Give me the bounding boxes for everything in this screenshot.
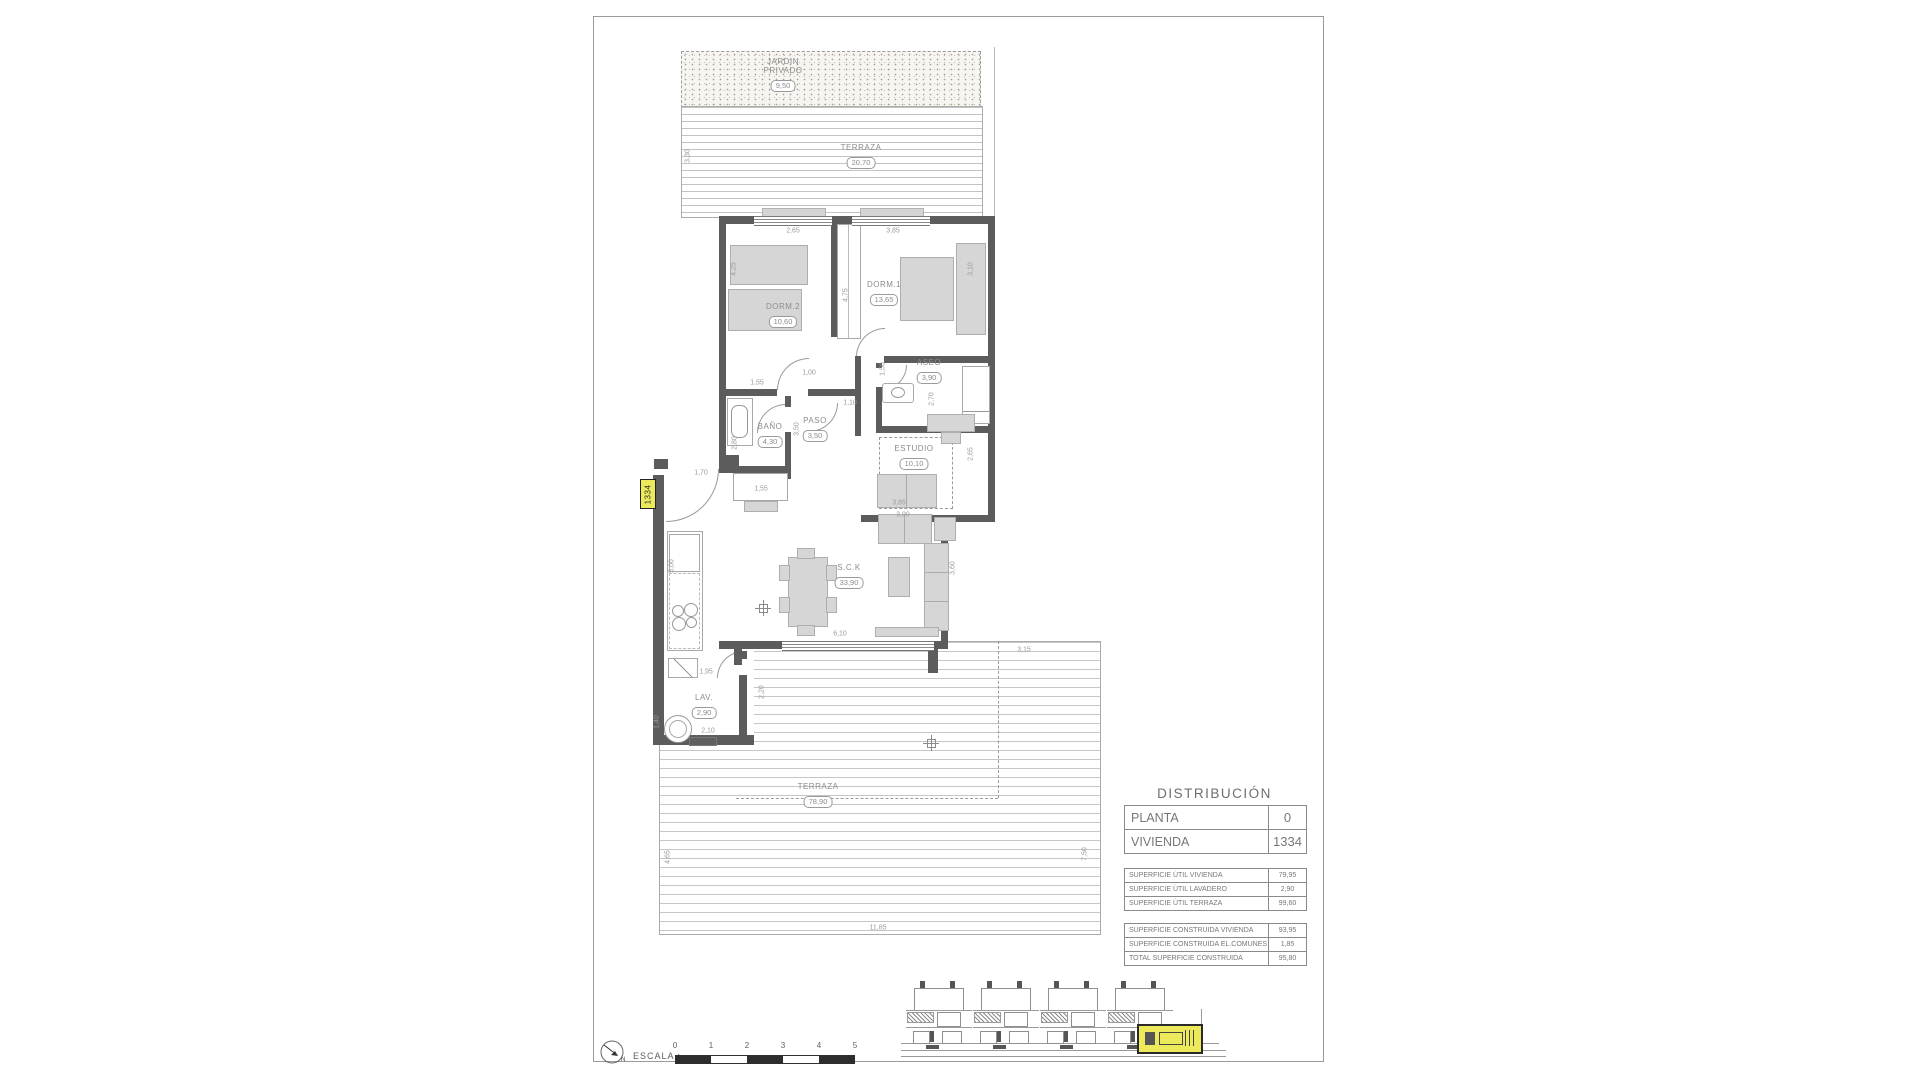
room-name: S.C.K xyxy=(835,563,864,572)
hob-burner xyxy=(684,603,698,617)
hob-burner xyxy=(672,617,686,631)
elevation-detail xyxy=(1048,988,1098,1011)
wall xyxy=(855,356,861,436)
window xyxy=(754,216,832,226)
elevation-detail xyxy=(1041,1012,1068,1023)
private-garden-area xyxy=(681,51,981,108)
wall xyxy=(653,475,664,741)
dimension-label: 5,00 xyxy=(669,559,676,573)
scale-tick: 1 xyxy=(709,1041,713,1050)
room-name: TERRAZA xyxy=(798,782,839,791)
room-label: TERRAZA78,90 xyxy=(798,782,839,809)
dimension-label: 1,40 xyxy=(654,715,661,729)
room-name: DORM.1 xyxy=(867,280,901,289)
useful-surface-table: SUPERFICIE ÚTIL VIVIENDA79,95SUPERFICIE … xyxy=(1124,868,1307,911)
dining-table xyxy=(788,557,828,627)
chair xyxy=(779,597,790,613)
washing-machine-drum xyxy=(669,720,687,738)
dimension-label: 3,15 xyxy=(1017,647,1031,654)
dimension-label: 3,10 xyxy=(968,262,975,276)
elevation-detail xyxy=(906,1010,972,1011)
room-area-value: 13,65 xyxy=(870,294,899,306)
elevation-detail xyxy=(1040,1027,1106,1028)
dimension-label: 3,85 xyxy=(886,228,900,235)
table-row-value: 2,90 xyxy=(1268,883,1306,896)
bed xyxy=(730,245,808,285)
wardrobe xyxy=(837,224,861,339)
scale-segment xyxy=(675,1055,711,1064)
table-row-value: 95,80 xyxy=(1268,952,1306,965)
table-row-value: 1,85 xyxy=(1268,938,1306,951)
wall xyxy=(739,675,747,741)
reference-cross xyxy=(923,735,939,751)
terrace-dashdot-line xyxy=(736,798,998,799)
elevation-detail xyxy=(1004,1012,1028,1027)
room-area-value: 9,50 xyxy=(771,80,796,92)
dimension-label: 3,85 xyxy=(892,500,906,507)
room-area-value: 4,30 xyxy=(758,436,783,448)
dimension-label: 2,65 xyxy=(968,447,975,461)
tv-bench xyxy=(875,627,939,637)
room-label: ASEO3,90 xyxy=(917,358,942,385)
armchair xyxy=(934,517,956,541)
bed xyxy=(900,257,954,321)
room-name: ESTUDIO xyxy=(894,444,933,453)
elevation-detail xyxy=(987,981,992,988)
wall xyxy=(719,389,777,396)
table-row: VIVIENDA1334 xyxy=(1125,830,1306,853)
dimension-label: 1,70 xyxy=(694,470,708,477)
sofa xyxy=(878,514,932,544)
dimension-label: 6,10 xyxy=(833,631,847,638)
room-area-value: 33,90 xyxy=(835,577,864,589)
wall xyxy=(739,651,747,659)
table-row-label: SUPERFICIE ÚTIL LAVADERO xyxy=(1125,883,1268,896)
dimension-label: 3,50 xyxy=(794,422,801,436)
elevation-detail xyxy=(920,981,925,988)
elevation-detail xyxy=(1084,981,1089,988)
room-label: S.C.K33,90 xyxy=(835,563,864,590)
table-row: SUPERFICIE ÚTIL TERRAZA99,60 xyxy=(1125,897,1306,910)
elevation-detail xyxy=(997,1031,1001,1042)
table-row: SUPERFICIE ÚTIL VIVIENDA79,95 xyxy=(1125,869,1306,883)
table-row-value: 93,95 xyxy=(1268,924,1306,937)
scale-label: ESCALA : xyxy=(633,1051,681,1061)
elevation-detail xyxy=(1107,1010,1173,1011)
table-row-label: SUPERFICIE ÚTIL VIVIENDA xyxy=(1125,869,1268,882)
scale-segment xyxy=(819,1055,855,1064)
table-row-value: 99,60 xyxy=(1268,897,1306,910)
sofa xyxy=(924,543,949,631)
washbasin-bowl xyxy=(891,387,905,398)
table-row-label: SUPERFICIE CONSTRUIDA VIVIENDA xyxy=(1125,924,1268,937)
dimension-label: 1,55 xyxy=(750,380,764,387)
table-row: SUPERFICIE CONSTRUIDA VIVIENDA93,95 xyxy=(1125,924,1306,938)
laundry-sink xyxy=(668,658,698,678)
elevation-detail xyxy=(1108,1012,1135,1023)
built-surface-table: SUPERFICIE CONSTRUIDA VIVIENDA93,95SUPER… xyxy=(1124,923,1307,966)
elevation-detail xyxy=(1017,981,1022,988)
scale-tick: 2 xyxy=(745,1041,749,1050)
room-area-value: 3,50 xyxy=(803,430,828,442)
rug xyxy=(744,501,778,512)
elevation-detail xyxy=(1076,1031,1096,1044)
window xyxy=(782,641,934,651)
elevation-detail xyxy=(1151,981,1156,988)
elevation-detail xyxy=(1114,1031,1131,1044)
dimension-label: 3,60 xyxy=(950,561,957,575)
distribution-title: DISTRIBUCIÓN xyxy=(1124,786,1305,801)
sofa xyxy=(877,474,937,508)
window xyxy=(852,216,930,226)
scale-segment xyxy=(711,1055,747,1064)
hob-burner xyxy=(672,605,684,617)
room-name: LAV. xyxy=(692,693,717,702)
elevation-detail xyxy=(1071,1012,1095,1027)
chair xyxy=(797,625,815,636)
plant-unit-table: PLANTA0VIVIENDA1334 xyxy=(1124,805,1307,854)
elevation-detail xyxy=(1131,1031,1135,1042)
table-row-label: SUPERFICIE CONSTRUIDA EL.COMUNES xyxy=(1125,938,1268,951)
highlighted-unit xyxy=(1137,1024,1203,1054)
room-label: ESTUDIO10,10 xyxy=(894,444,933,471)
bathtub-basin xyxy=(731,405,748,438)
room-area-value: 3,90 xyxy=(917,372,942,384)
elevation-detail xyxy=(973,1010,1039,1011)
coffee-table xyxy=(888,557,910,597)
elevation-detail xyxy=(1060,1045,1073,1049)
room-label: LAV.2,90 xyxy=(692,693,717,720)
elevation-detail xyxy=(950,981,955,988)
wall xyxy=(719,216,726,469)
elevation-detail xyxy=(1009,1031,1029,1044)
dimension-label: 3,30 xyxy=(685,149,692,163)
chair xyxy=(779,565,790,581)
wall xyxy=(785,396,791,407)
desk-chair xyxy=(941,432,961,444)
table-row-label: VIVIENDA xyxy=(1125,830,1268,853)
scale-segment xyxy=(783,1055,819,1064)
table-row-value: 79,95 xyxy=(1268,869,1306,882)
hob-burner xyxy=(686,617,697,628)
reference-cross xyxy=(755,600,771,616)
elevation-detail xyxy=(930,1031,934,1042)
elevation-detail xyxy=(1064,1031,1068,1042)
elevation-detail xyxy=(973,1027,1039,1028)
scale-tick: 4 xyxy=(817,1041,821,1050)
room-area-value: 10,10 xyxy=(900,458,929,470)
unit-number: 1334 xyxy=(644,484,653,504)
elevation-detail xyxy=(980,1031,997,1044)
wall xyxy=(654,459,668,469)
table-row-label: TOTAL SUPERFICIE CONSTRUIDA xyxy=(1125,952,1268,965)
room-label: TERRAZA20,70 xyxy=(841,143,882,170)
elevation-detail xyxy=(937,1012,961,1027)
wall xyxy=(808,389,861,396)
terrace-dashed-line xyxy=(998,641,999,798)
room-label: JARDIN PRIVADO9,50 xyxy=(764,57,803,93)
elevation-detail xyxy=(926,1045,939,1049)
table-row-label: SUPERFICIE ÚTIL TERRAZA xyxy=(1125,897,1268,910)
dimension-label: 2,10 xyxy=(701,728,715,735)
elevation-detail xyxy=(906,1027,972,1028)
room-name: JARDIN PRIVADO xyxy=(764,57,803,75)
dimension-label: 1,50 xyxy=(880,362,887,376)
desk xyxy=(927,414,975,432)
door-sill-hatch xyxy=(689,737,717,746)
table-row-value: 0 xyxy=(1268,806,1306,829)
elevation-detail xyxy=(942,1031,962,1044)
room-name: DORM.2 xyxy=(766,302,800,311)
scale-tick: 5 xyxy=(853,1041,857,1050)
boundary-line xyxy=(994,47,995,216)
building-elevation xyxy=(901,981,1226,1059)
table-row: SUPERFICIE ÚTIL LAVADERO2,90 xyxy=(1125,883,1306,897)
dimension-label: 2,20 xyxy=(759,685,766,699)
table-row: TOTAL SUPERFICIE CONSTRUIDA95,80 xyxy=(1125,952,1306,965)
chair xyxy=(826,597,837,613)
dimension-label: 7,50 xyxy=(1082,847,1089,861)
elevation-detail xyxy=(914,988,964,1011)
room-label: BAÑO4,30 xyxy=(758,422,783,449)
room-area-value: 78,90 xyxy=(804,796,833,808)
dimension-label: 2,80 xyxy=(732,436,739,450)
table-row: SUPERFICIE CONSTRUIDA EL.COMUNES1,85 xyxy=(1125,938,1306,952)
table-row-label: PLANTA xyxy=(1125,806,1268,829)
elevation-detail xyxy=(1121,981,1126,988)
table-row: PLANTA0 xyxy=(1125,806,1306,830)
scale-tick: 3 xyxy=(781,1041,785,1050)
dimension-label: 3,90 xyxy=(896,512,910,519)
scale-tick: 0 xyxy=(673,1041,677,1050)
room-name: PASO xyxy=(803,416,828,425)
unit-number-tag: 1334 xyxy=(640,479,656,509)
wall-stub xyxy=(928,649,938,673)
scale-segment xyxy=(747,1055,783,1064)
room-area-value: 10,60 xyxy=(769,316,798,328)
upper-terrace-area xyxy=(681,106,983,218)
dimension-label: 11,85 xyxy=(870,925,887,932)
dimension-label: 1,55 xyxy=(754,486,768,493)
room-area-value: 2,90 xyxy=(692,707,717,719)
chair xyxy=(797,548,815,559)
elevation-detail xyxy=(1040,1010,1106,1011)
room-name: TERRAZA xyxy=(841,143,882,152)
elevation-detail xyxy=(1054,981,1059,988)
headboard xyxy=(956,243,986,335)
elevation-detail xyxy=(1115,988,1165,1011)
north-letter: N xyxy=(621,1057,625,1063)
elevation-detail xyxy=(907,1012,934,1023)
room-area-value: 20,70 xyxy=(847,157,876,169)
room-label: DORM.210,60 xyxy=(766,302,800,329)
dimension-label: 4,75 xyxy=(843,288,850,302)
room-label: DORM.113,65 xyxy=(867,280,901,307)
plan-sheet: 1334 JARDIN PRIVADO9,50TERRAZA20,70DORM.… xyxy=(593,16,1324,1062)
elevation-detail xyxy=(913,1031,930,1044)
scale-bar: N ESCALA : 012345 xyxy=(599,1031,869,1061)
room-name: ASEO xyxy=(917,358,942,367)
elevation-detail xyxy=(1047,1031,1064,1044)
elevation-detail xyxy=(993,1045,1006,1049)
dimension-label: 1,10 xyxy=(843,400,857,407)
room-label: PASO3,50 xyxy=(803,416,828,443)
dimension-label: 1,00 xyxy=(802,370,816,377)
dimension-label: 4,65 xyxy=(665,850,672,864)
table-row-value: 1334 xyxy=(1268,830,1306,853)
wall xyxy=(719,466,791,473)
dimension-label: 2,65 xyxy=(786,228,800,235)
dimension-label: 2,70 xyxy=(929,392,936,406)
dimension-label: 4,25 xyxy=(731,262,738,276)
room-name: BAÑO xyxy=(758,422,783,431)
elevation-detail xyxy=(974,1012,1001,1023)
dimension-label: 1,95 xyxy=(699,669,713,676)
elevation-detail xyxy=(981,988,1031,1011)
